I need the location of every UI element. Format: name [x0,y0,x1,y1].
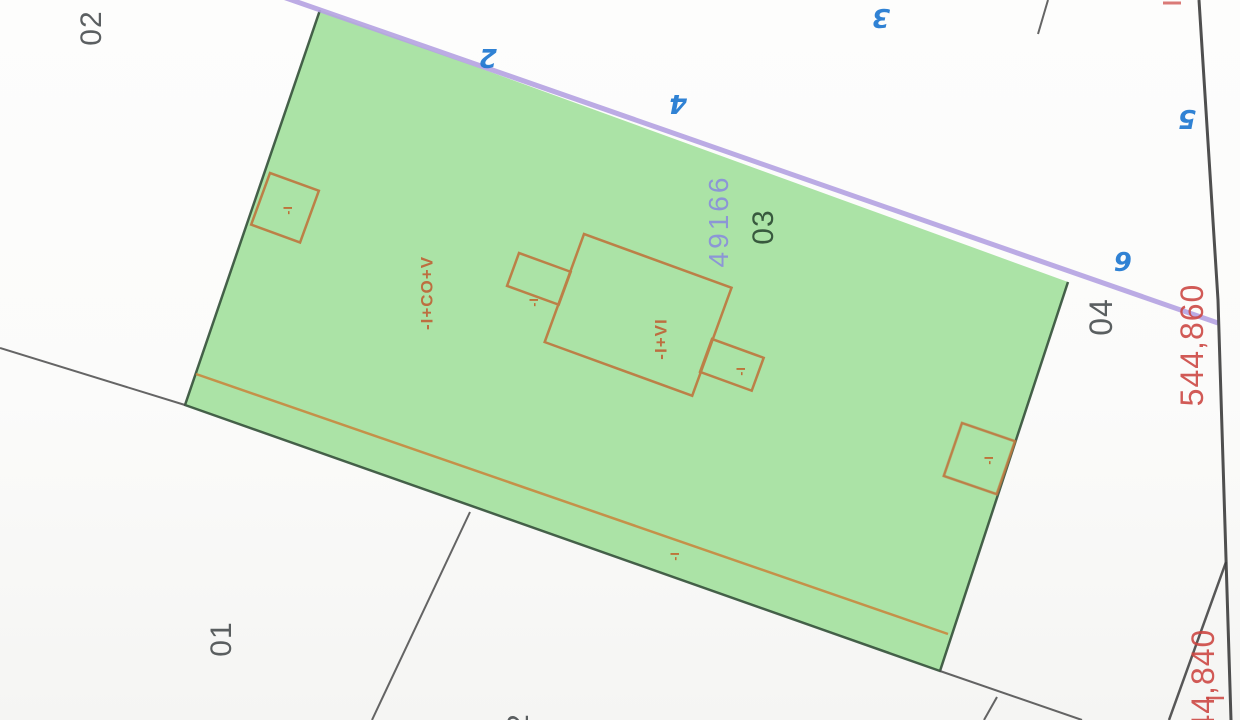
parcel-number-49166: 49166 [705,175,733,268]
zone-label-partial-bottom: 2 [504,713,534,720]
coordinate-label-top: 544,860 [1176,284,1208,407]
street-number-6: 6 [1114,247,1132,273]
street-number-2: 2 [479,44,497,70]
building-label-annex-right-wing: -I [735,366,747,375]
building-label-wing: -I+CO+V [419,256,436,330]
neighbor-line-bottom-right [940,671,1082,720]
building-label-main: -I+VI [653,318,670,359]
zone-label-03: 03 [749,209,779,244]
building-label-annex-bottom-line: -I [669,551,681,560]
neighbor-line-top [1038,0,1048,34]
street-number-4: 4 [669,90,687,116]
zone-label-01: 01 [207,621,237,656]
building-label-annex-left-wing: -I [528,297,540,306]
neighbor-line-bottom-branch [984,697,997,720]
building-label-annex-left-building: -I [282,205,294,214]
street-number-5: 5 [1178,105,1196,131]
building-label-annex-right-edge: -I [983,455,995,464]
neighbor-line-bottom-left [372,512,470,720]
street-number-3: 3 [872,4,890,30]
coordinate-label-bottom: 544,840 [1187,629,1219,720]
plan-drawing [0,0,1240,720]
neighbor-line-left [0,348,185,405]
zone-label-04: 04 [1085,298,1117,336]
zone-label-02: 02 [77,10,107,45]
cadastral-plan: 02 01 03 04 2 49166 2 3 4 5 6 544,860 54… [0,0,1240,720]
parcel-area-49166 [185,10,1068,671]
